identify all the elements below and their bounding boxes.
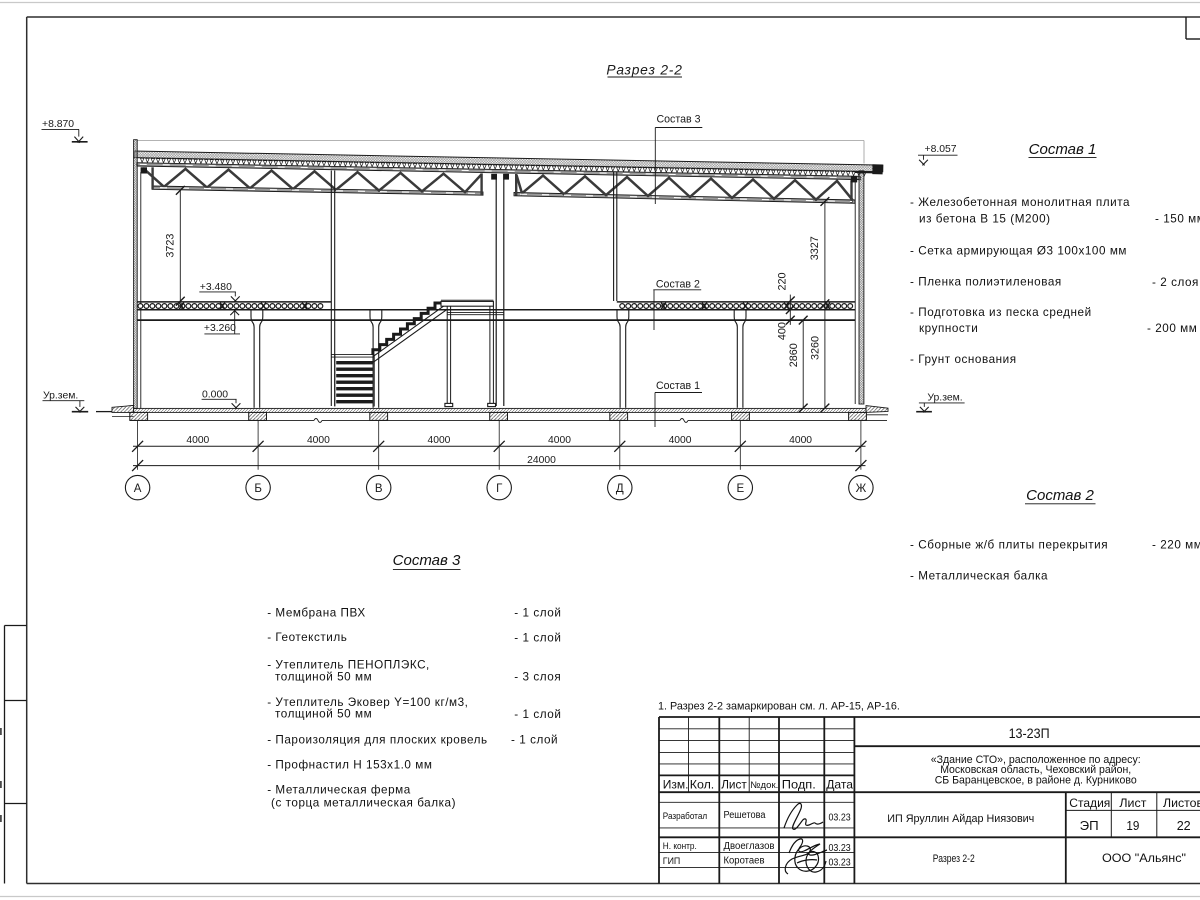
svg-text:1. Разрез 2-2 замаркирован см.: 1. Разрез 2-2 замаркирован см. л. АР-15,… bbox=[658, 701, 900, 713]
svg-text:4000: 4000 bbox=[186, 435, 209, 446]
svg-text:толщиной 50 мм: толщиной 50 мм bbox=[275, 671, 372, 684]
svg-text:+3.260: +3.260 bbox=[204, 323, 236, 334]
svg-text:Ур.зем.: Ур.зем. bbox=[43, 390, 78, 401]
svg-text:+8.870: +8.870 bbox=[42, 119, 74, 130]
svg-text:ЭП: ЭП bbox=[1080, 818, 1099, 833]
svg-text:Е: Е bbox=[736, 483, 744, 495]
svg-text:Стадия: Стадия bbox=[1069, 796, 1110, 810]
svg-text:24000: 24000 bbox=[527, 455, 556, 466]
svg-text:Двоеглазов: Двоеглазов bbox=[724, 841, 775, 852]
svg-text:4000: 4000 bbox=[669, 435, 692, 446]
svg-text:В: В bbox=[375, 483, 383, 495]
svg-text:Разработал: Разработал bbox=[663, 811, 707, 821]
svg-text:Коротаев: Коротаев bbox=[724, 856, 765, 867]
svg-text:- 1 слой: - 1 слой bbox=[511, 734, 558, 747]
svg-text:4000: 4000 bbox=[307, 435, 330, 446]
svg-text:Дата: Дата bbox=[826, 778, 853, 792]
svg-text:Кол.: Кол. bbox=[690, 778, 715, 792]
svg-text:3260: 3260 bbox=[809, 336, 821, 360]
svg-text:СБ Баранцевское, в районе д. К: СБ Баранцевское, в районе д. Курниково bbox=[935, 774, 1137, 786]
svg-text:03.23: 03.23 bbox=[829, 843, 852, 854]
svg-text:Подп.: Подп. bbox=[782, 778, 816, 792]
svg-text:+8.057: +8.057 bbox=[925, 144, 957, 155]
svg-text:Изм.: Изм. bbox=[663, 778, 689, 792]
svg-text:Состав 2: Состав 2 bbox=[656, 279, 700, 291]
svg-text:- 1 слой: - 1 слой bbox=[514, 607, 561, 620]
svg-text:толщиной 50 мм: толщиной 50 мм bbox=[275, 708, 372, 721]
svg-text:- 150 мм: - 150 мм bbox=[1155, 213, 1200, 226]
svg-text:- Профнастил Н 153х1.0 мм: - Профнастил Н 153х1.0 мм bbox=[267, 758, 432, 771]
svg-text:крупности: крупности bbox=[919, 322, 978, 335]
svg-text:Лист: Лист bbox=[721, 778, 747, 792]
svg-text:Состав 3: Состав 3 bbox=[393, 552, 461, 569]
svg-text:№док.: №док. bbox=[750, 780, 778, 791]
svg-text:13-23П: 13-23П bbox=[1009, 726, 1050, 741]
svg-text:19: 19 bbox=[1126, 818, 1139, 833]
svg-text:03.23: 03.23 bbox=[829, 858, 852, 869]
svg-text:- Металлическая балка: - Металлическая балка bbox=[910, 569, 1048, 582]
svg-text:- Металлическая ферма: - Металлическая ферма bbox=[267, 784, 411, 797]
svg-text:- Пленка полиэтиленовая: - Пленка полиэтиленовая bbox=[910, 276, 1062, 289]
svg-text:- Пароизоляция для плоских кро: - Пароизоляция для плоских кровель bbox=[267, 733, 487, 746]
svg-text:Состав 3: Состав 3 bbox=[657, 114, 701, 126]
svg-text:ООО "Альянс": ООО "Альянс" bbox=[1102, 851, 1186, 865]
svg-text:из бетона В 15 (М200): из бетона В 15 (М200) bbox=[919, 212, 1051, 225]
svg-text:- Железобетонная монолитная п: - Железобетонная монолитная плита bbox=[910, 196, 1130, 209]
svg-text:- Геотекстиль: - Геотекстиль bbox=[267, 631, 347, 644]
svg-text:Б: Б bbox=[254, 483, 262, 495]
svg-text:400: 400 bbox=[777, 322, 789, 340]
svg-text:03.23: 03.23 bbox=[829, 812, 852, 823]
svg-text:ГИП: ГИП bbox=[663, 856, 681, 867]
svg-text:3327: 3327 bbox=[809, 236, 821, 260]
svg-text:Д: Д bbox=[616, 483, 624, 495]
svg-text:Ур.зем.: Ур.зем. bbox=[927, 393, 962, 404]
svg-text:Листов: Листов bbox=[1163, 796, 1200, 810]
svg-text:(с торца металлическая балка): (с торца металлическая балка) bbox=[271, 796, 456, 809]
svg-text:- Утеплитель ПЕНОПЛЭКС,: - Утеплитель ПЕНОПЛЭКС, bbox=[267, 658, 430, 671]
svg-text:- 1 слой: - 1 слой bbox=[514, 708, 561, 721]
svg-text:220: 220 bbox=[777, 272, 789, 290]
svg-text:Состав 1: Состав 1 bbox=[1029, 141, 1097, 158]
svg-text:- Мембрана ПВХ: - Мембрана ПВХ bbox=[267, 607, 365, 620]
svg-text:- 3 слоя: - 3 слоя bbox=[514, 671, 561, 684]
svg-text:4000: 4000 bbox=[789, 435, 812, 446]
svg-text:Разрез 2-2: Разрез 2-2 bbox=[933, 853, 975, 865]
svg-text:2860: 2860 bbox=[788, 343, 800, 367]
svg-text:А: А bbox=[134, 483, 142, 495]
svg-text:22: 22 bbox=[1177, 818, 1191, 833]
svg-text:Состав 1: Состав 1 bbox=[656, 380, 700, 392]
svg-text:Ж: Ж bbox=[856, 483, 867, 495]
svg-text:ИП Яруллин Айдар Ниязович: ИП Яруллин Айдар Ниязович bbox=[887, 813, 1034, 825]
svg-text:Н. контр.: Н. контр. bbox=[663, 841, 697, 852]
svg-text:- Сетка армирующая Ø3 100х100: - Сетка армирующая Ø3 100х100 мм bbox=[910, 245, 1127, 258]
svg-text:- 2 слоя: - 2 слоя bbox=[1152, 276, 1199, 289]
svg-text:- Сборные ж/б плиты перекрытия: - Сборные ж/б плиты перекрытия bbox=[910, 538, 1108, 551]
svg-text:Разрез 2-2: Разрез 2-2 bbox=[606, 63, 682, 78]
svg-text:- Подготовка из песка средней: - Подготовка из песка средней bbox=[910, 306, 1092, 319]
svg-text:Лист: Лист bbox=[1119, 796, 1146, 810]
svg-text:3723: 3723 bbox=[164, 234, 176, 258]
svg-text:- 1 слой: - 1 слой bbox=[514, 631, 561, 644]
svg-text:Решетова: Решетова bbox=[724, 810, 766, 821]
svg-text:- 200 мм: - 200 мм bbox=[1147, 322, 1197, 335]
svg-text:4000: 4000 bbox=[548, 435, 571, 446]
svg-text:+3.480: +3.480 bbox=[200, 282, 232, 293]
svg-text:- 220 мм: - 220 мм bbox=[1152, 539, 1200, 552]
svg-text:- Грунт основания: - Грунт основания bbox=[910, 353, 1017, 366]
svg-text:Состав 2: Состав 2 bbox=[1026, 487, 1094, 504]
svg-text:Г: Г bbox=[496, 483, 503, 495]
svg-text:4000: 4000 bbox=[427, 435, 450, 446]
